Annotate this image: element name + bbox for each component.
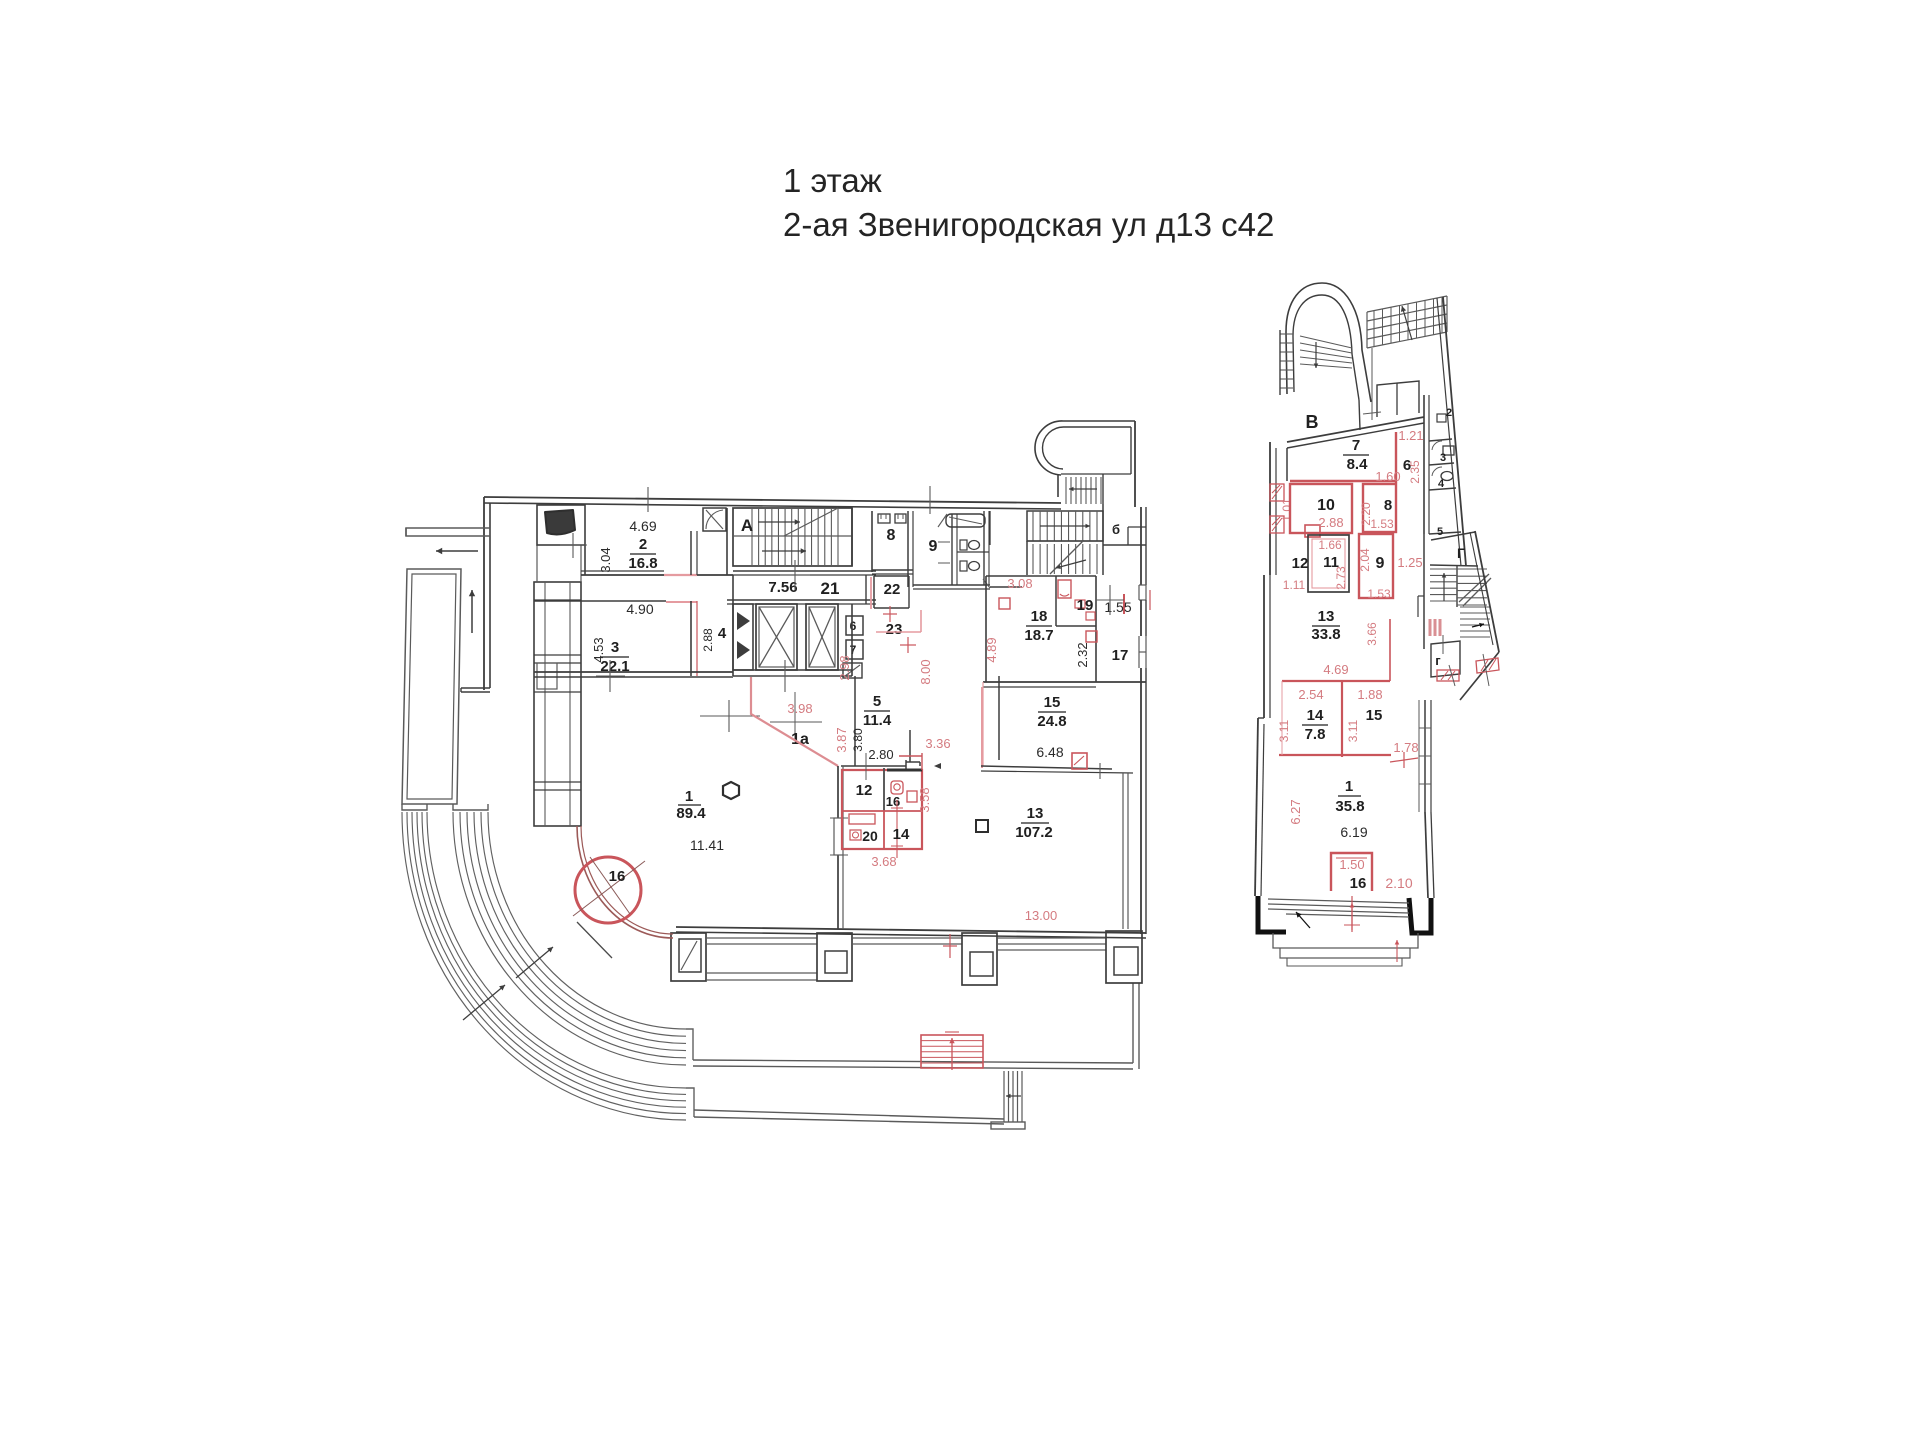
svg-text:7.56: 7.56 [768,579,797,596]
svg-text:1.66: 1.66 [1318,538,1342,552]
svg-text:14: 14 [1307,707,1324,724]
svg-text:2: 2 [1446,407,1452,419]
svg-text:2.10: 2.10 [1385,875,1412,891]
svg-text:15: 15 [1044,694,1061,711]
svg-text:3.87: 3.87 [834,727,849,752]
svg-text:5: 5 [873,693,881,710]
svg-text:8.00: 8.00 [918,659,933,684]
svg-text:б: б [1112,522,1120,537]
svg-text:16: 16 [886,794,900,809]
svg-text:3.08: 3.08 [1007,576,1032,591]
svg-text:13: 13 [1318,608,1335,625]
svg-text:3: 3 [611,639,619,656]
svg-text:89.4: 89.4 [676,805,706,822]
svg-text:12: 12 [1292,555,1309,572]
svg-text:3.98: 3.98 [787,701,812,716]
svg-text:16: 16 [609,868,626,885]
svg-text:6: 6 [850,619,857,633]
svg-text:6.19: 6.19 [1340,824,1367,840]
svg-text:1.50: 1.50 [1339,857,1364,872]
svg-text:9: 9 [929,538,938,555]
svg-text:3.11: 3.11 [1277,719,1291,742]
svg-text:1.60: 1.60 [1375,469,1400,484]
svg-text:3.58: 3.58 [917,787,932,812]
svg-text:3.36: 3.36 [925,736,950,751]
svg-text:21: 21 [821,579,840,598]
svg-text:4: 4 [718,625,727,642]
svg-text:1.53: 1.53 [1370,517,1394,531]
svg-text:2.98: 2.98 [837,655,852,680]
svg-text:8: 8 [887,527,896,544]
svg-text:4.90: 4.90 [626,601,653,617]
svg-text:2.88: 2.88 [1318,515,1343,530]
svg-text:1.01: 1.01 [1280,498,1294,522]
svg-text:1.78: 1.78 [1393,740,1418,755]
svg-text:4.69: 4.69 [1323,662,1348,677]
svg-text:А: А [741,516,753,535]
svg-text:3: 3 [1440,452,1446,464]
svg-text:1.53: 1.53 [1367,587,1391,601]
svg-text:6.48: 6.48 [1036,744,1063,760]
svg-text:12: 12 [856,782,873,799]
svg-text:15: 15 [1366,707,1383,724]
svg-text:16.8: 16.8 [628,555,657,572]
svg-text:23: 23 [886,621,903,638]
svg-text:2.73: 2.73 [1334,566,1348,590]
svg-text:1.25: 1.25 [1397,555,1422,570]
svg-text:13.00: 13.00 [1025,908,1058,923]
svg-text:1 этаж: 1 этаж [783,162,882,199]
svg-text:2.80: 2.80 [868,747,893,762]
svg-text:1: 1 [685,788,693,805]
svg-text:3.04: 3.04 [598,547,613,572]
svg-text:1: 1 [1345,778,1353,795]
svg-text:Г: Г [1457,545,1465,561]
svg-text:2.88: 2.88 [701,628,715,652]
svg-text:11.41: 11.41 [690,837,724,853]
svg-text:4.89: 4.89 [984,637,999,662]
svg-text:16: 16 [1350,875,1367,892]
svg-text:3.66: 3.66 [1365,622,1379,646]
svg-text:2.04: 2.04 [1358,548,1372,572]
svg-text:2: 2 [639,536,647,553]
svg-text:7: 7 [850,643,857,657]
svg-text:24.8: 24.8 [1037,713,1066,730]
svg-text:2-ая Звенигородская ул д13 с42: 2-ая Звенигородская ул д13 с42 [783,206,1274,243]
svg-text:20: 20 [862,828,878,844]
svg-text:4: 4 [1438,478,1445,490]
svg-text:7.8: 7.8 [1305,726,1326,743]
svg-text:г: г [1435,653,1441,668]
svg-text:17: 17 [1112,647,1129,664]
svg-text:4.53: 4.53 [591,637,606,662]
svg-text:22: 22 [884,581,901,598]
svg-text:8: 8 [1384,497,1392,514]
svg-text:1.11: 1.11 [1283,578,1306,592]
svg-text:3.80: 3.80 [851,728,865,752]
svg-text:35.8: 35.8 [1335,798,1364,815]
svg-text:14: 14 [893,826,910,843]
svg-text:2.54: 2.54 [1298,687,1323,702]
svg-text:18.7: 18.7 [1024,627,1053,644]
svg-text:19: 19 [1077,597,1094,614]
svg-text:В: В [1306,412,1319,432]
svg-text:1.88: 1.88 [1357,687,1382,702]
svg-text:18: 18 [1031,608,1048,625]
svg-text:1.21: 1.21 [1398,428,1423,443]
svg-text:1.55: 1.55 [1104,599,1131,615]
svg-text:7: 7 [1352,437,1360,454]
svg-text:8.4: 8.4 [1347,456,1369,473]
svg-text:4.69: 4.69 [629,518,656,534]
svg-text:6.27: 6.27 [1288,799,1303,824]
svg-text:9: 9 [1376,555,1385,572]
svg-text:13: 13 [1027,805,1044,822]
svg-text:3.11: 3.11 [1346,719,1360,742]
svg-text:33.8: 33.8 [1311,626,1340,643]
svg-text:3.68: 3.68 [871,854,896,869]
svg-text:11.4: 11.4 [863,712,892,729]
svg-text:6: 6 [1403,457,1411,474]
svg-text:2.32: 2.32 [1075,642,1090,667]
svg-text:107.2: 107.2 [1015,824,1053,841]
svg-text:5: 5 [1437,526,1443,538]
svg-text:10: 10 [1317,497,1335,514]
